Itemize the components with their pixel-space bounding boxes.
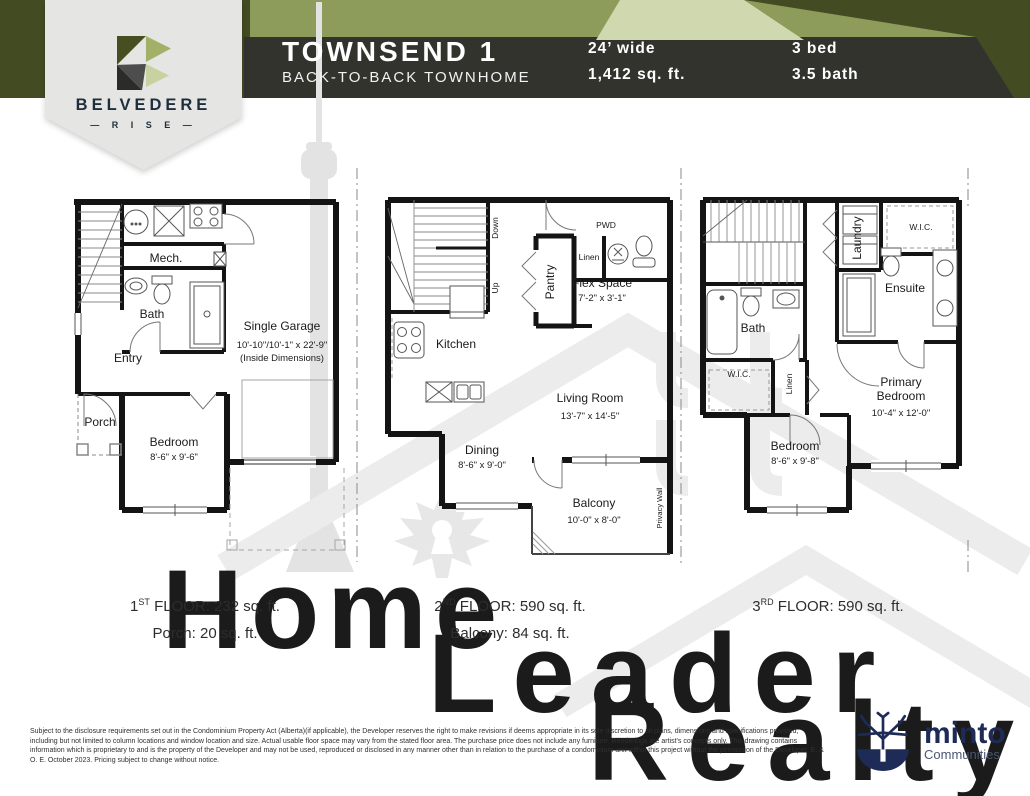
third-floor-sup: RD [761,597,774,607]
p3-label-bedroom: Bedroom [771,439,820,453]
p1-label-garage: Single Garage [244,319,321,333]
p2-label-linen: Linen [579,252,600,262]
p3-stairs [703,200,805,284]
spec-width: 24’ wide [588,40,655,58]
plan-title: TOWNSEND 1 [282,36,498,68]
p2-label-flex-dim: 7'-2" x 3'-1" [578,293,626,304]
second-floor-rest: FLOOR: 590 sq. ft. [456,598,586,615]
floorplan-brochure-page: Home Leader Realty TOWNSEND 1 BACK-TO-BA… [0,0,1030,796]
p3-label-primary1: Primary [880,375,921,389]
p2-label-pantry: Pantry [543,265,557,300]
p2-label-down: Down [490,217,500,239]
p3-label-bedroom-dim: 8'-6" x 9'-8" [771,456,819,467]
spec-baths: 3.5 bath [792,66,859,84]
p2-label-living: Living Room [557,391,624,405]
p2-label-kitchen: Kitchen [436,337,476,351]
belvedere-logo-icon [117,36,171,90]
third-floor-rest: FLOOR: 590 sq. ft. [774,598,904,615]
p2-pwd-fixtures-icon [608,236,655,267]
floorplan-third-floor: Laundry W.I.C. Ensuite Bath W.I.C. Linen… [695,192,980,527]
p1-label-bath: Bath [140,307,165,321]
p1-stairs [78,204,122,308]
p2-doors [522,200,576,488]
p3-label-bath: Bath [741,321,766,335]
minto-name: minto [924,721,1006,747]
second-floor-label: 2ND FLOOR: 590 sq. ft. [434,597,585,615]
p1-label-garage-dim: 10'-10"/10'-1" x 22'-9" [237,340,328,351]
p3-label-laundry: Laundry [850,216,864,259]
p2-label-dining: Dining [465,443,499,457]
third-floor-label: 3RD FLOOR: 590 sq. ft. [752,597,903,615]
p2-label-privacy-wall: Privacy Wall [655,487,664,528]
p2-label-pwd: PWD [596,220,616,230]
p2-balcony-walls [532,506,670,554]
plan-subtitle: BACK-TO-BACK TOWNHOME [282,69,531,86]
p3-label-wic-top: W.I.C. [909,222,932,232]
p3-label-primary-dim: 10'-4" x 12'-0" [872,408,930,419]
first-floor-label: 1ST FLOOR: 232 sq. ft. [130,597,280,615]
p3-label-linen: Linen [784,373,794,394]
p1-label-bedroom: Bedroom [150,435,199,449]
p2-label-up: Up [490,282,500,293]
p2-interior-walls [388,200,670,326]
p1-label-garage-dim2: (Inside Dimensions) [240,353,324,364]
disclaimer-text: Subject to the disclosure requirements s… [30,727,825,766]
p2-label-flex: Flex Space [572,276,632,290]
spec-area: 1,412 sq. ft. [588,66,685,84]
p1-label-entry: Entry [114,351,142,365]
p1-label-bedroom-dim: 8'-6" x 9'-6" [150,452,198,463]
floorplan-second-floor: Down Up Pantry Linen PWD Flex Space 7'-2… [378,192,680,567]
porch-area-label: Porch: 20 sq. ft. [152,625,257,642]
p3-label-wic-lower: W.I.C. [727,369,750,379]
minto-logo: minto Communities [852,710,1006,772]
floorplan-first-floor: Mech. Bath Entry Porch Single Garage 10'… [64,192,346,564]
p3-label-primary2: Bedroom [877,389,926,403]
second-floor-sup: ND [443,597,456,607]
belvedere-badge: BELVEDERE — R I S E — [45,0,242,170]
spec-beds: 3 bed [792,40,837,58]
minto-tagline: Communities [924,747,1006,762]
p2-label-balcony-dim: 10'-0" x 8'-0" [567,515,620,526]
brand-name: BELVEDERE [45,96,242,115]
brand-rise: — R I S E — [45,120,242,130]
first-floor-rest: FLOOR: 232 sq. ft. [150,598,280,615]
minto-tree-icon [852,710,914,772]
p2-label-balcony: Balcony [573,496,616,510]
p1-label-mech: Mech. [150,251,183,265]
p3-label-ensuite: Ensuite [885,281,925,295]
p2-label-living-dim: 13'-7" x 14'-5" [561,411,619,422]
balcony-area-label: Balcony: 84 sq. ft. [450,625,569,642]
first-floor-sup: ST [138,597,150,607]
p1-label-porch: Porch [84,415,115,429]
p2-label-dining-dim: 8'-6" x 9'-0" [458,460,506,471]
